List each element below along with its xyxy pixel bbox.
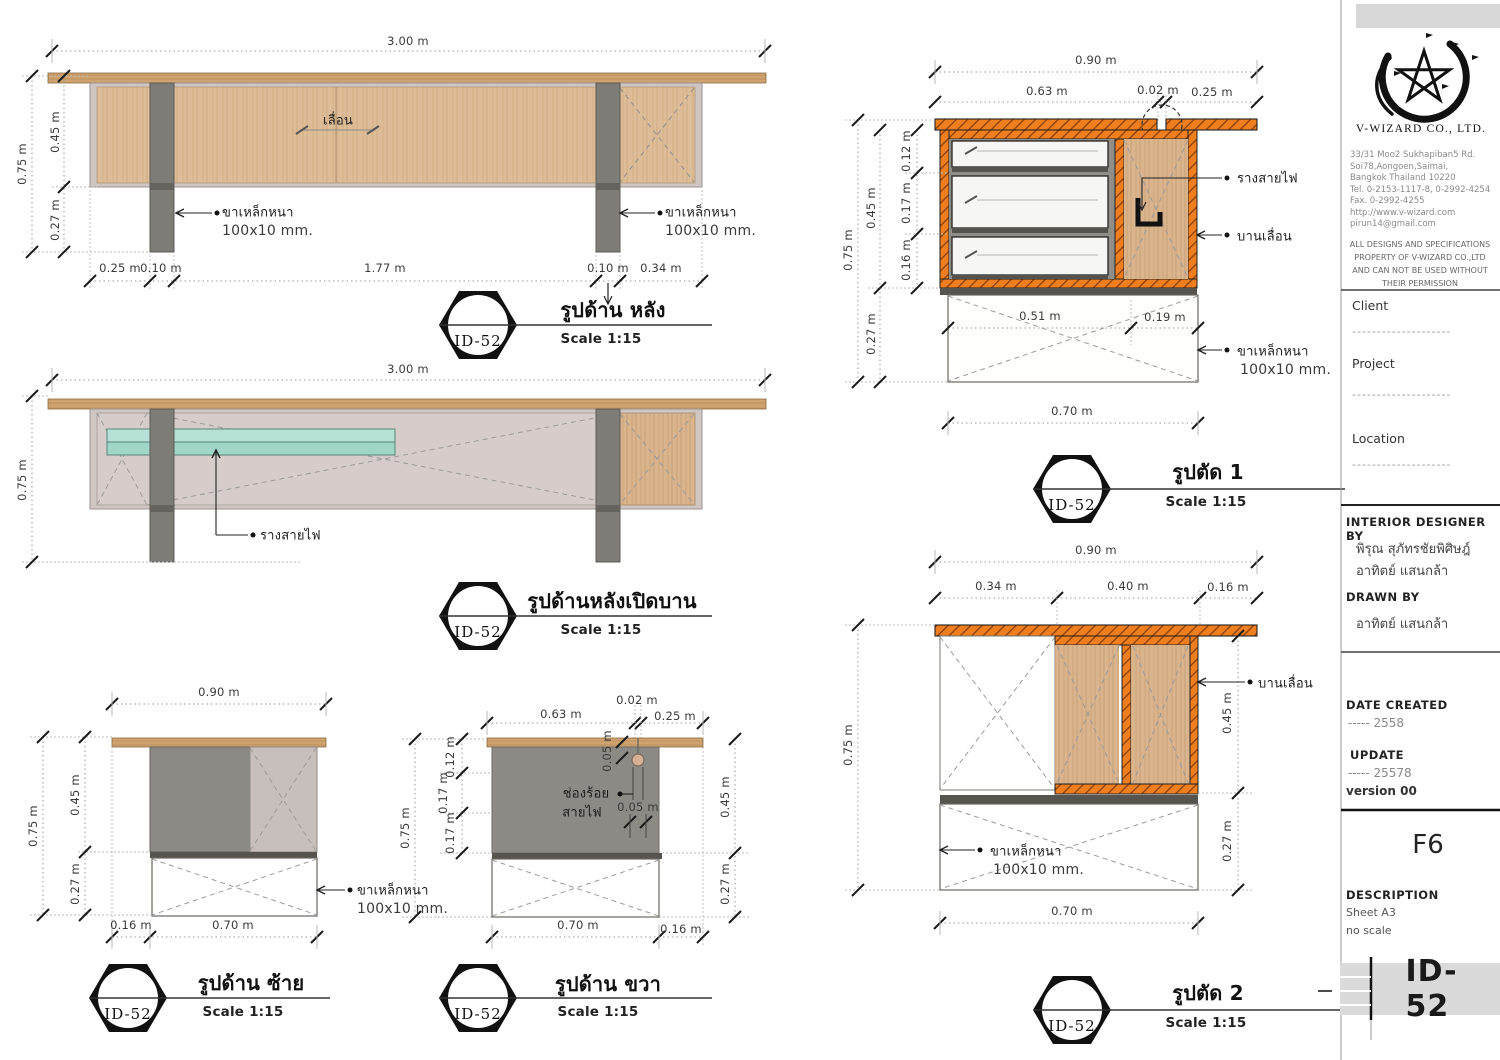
dim-label: 0.27 m (68, 863, 82, 905)
dim-label: 0.02 m (1137, 83, 1179, 97)
company-logo-icon (1377, 33, 1479, 119)
date-created-value: ----- 2558 (1348, 716, 1404, 730)
section1-drawers (952, 141, 1108, 279)
dim-label: 0.27 m (864, 313, 878, 355)
designer-name: อาทิตย์ แสนกล้า (1356, 560, 1448, 581)
sliding-door-label: บานเลื่อน (1237, 226, 1292, 247)
view-badge: ID-52 (454, 623, 501, 641)
address-line: 33/31 Moo2 Sukhapiban5 Rd. (1350, 150, 1498, 162)
rear-leg-right (596, 83, 620, 252)
dim-label: 0.27 m (718, 863, 732, 905)
left-tabletop (112, 738, 326, 747)
steel-leg-note: 100x10 mm. (665, 223, 756, 239)
steel-leg-note: ขาเหล็กหนา (1237, 341, 1309, 362)
dim-label: 0.75 m (15, 143, 29, 185)
disclaimer-line: THEIR PERMISSION (1345, 277, 1495, 290)
wire-hole-note: ช่องร้อย (563, 783, 610, 804)
view-badge: ID-52 (104, 1005, 151, 1023)
dim-label: 0.90 m (1075, 53, 1117, 67)
view-badge: ID-52 (454, 1005, 501, 1023)
view-scale: Scale 1:15 (1166, 1015, 1247, 1031)
company-address: 33/31 Moo2 Sukhapiban5 Rd. Soi78,Aongoen… (1350, 150, 1498, 231)
dim-label: 0.17 m (899, 182, 913, 224)
section1-tabletop-left (935, 119, 1157, 130)
wire-hole (632, 754, 644, 766)
sheet-code: F6 (1412, 830, 1444, 860)
view-scale: Scale 1:15 (561, 331, 642, 347)
section1-linework (845, 60, 1345, 523)
designer-name: พิรุณ สุภัทรชัยพิศิษฎ์ (1356, 538, 1470, 559)
dim-label: 0.75 m (841, 229, 855, 271)
dim-label: 0.27 m (48, 199, 62, 241)
location-value: -------------------- (1352, 458, 1451, 471)
rear-open-leg-left (150, 409, 174, 562)
section1-tabletop-right (1166, 119, 1257, 130)
cable-tray-label: รางสายไฟ (260, 525, 321, 546)
address-line: Bangkok Thailand 10220 (1350, 173, 1498, 185)
update-value: ----- 25578 (1348, 766, 1412, 780)
disclaimer-line: ALL DESIGNS AND SPECIFICATIONS (1345, 238, 1495, 251)
dim-label: 0.17 m (436, 772, 450, 814)
dim-label: 0.40 m (1107, 579, 1149, 593)
dim-label: 0.45 m (68, 774, 82, 816)
drawn-by-label: DRAWN BY (1346, 590, 1420, 604)
rear-open-leg-right (596, 409, 620, 562)
date-created-label: DATE CREATED (1346, 698, 1448, 712)
disclaimer-line: AND CAN NOT BE USED WITHOUT (1345, 264, 1495, 277)
description-label: DESCRIPTION (1346, 888, 1439, 902)
section1-base-box (948, 295, 1198, 382)
dim-label: 0.45 m (1220, 692, 1234, 734)
sheet-id: ID-52 (1406, 954, 1469, 1024)
dim-label: 0.34 m (640, 261, 682, 275)
view-scale: Scale 1:15 (561, 622, 642, 638)
description-line: Sheet A3 (1346, 906, 1396, 919)
steel-leg-note: 100x10 mm. (1240, 362, 1331, 378)
dim-label: 0.02 m (616, 693, 658, 707)
dim-label: 0.45 m (718, 776, 732, 818)
address-line: Tel. 0-2153-1117-8, 0-2992-4254 (1350, 185, 1498, 197)
dim-label: 0.16 m (1207, 580, 1249, 594)
sheet-linework (0, 0, 1500, 1060)
dim-label: 0.17 m (443, 812, 457, 854)
view-title: รูปด้าน หลัง (560, 294, 665, 326)
wire-hole-note: สายไฟ (562, 802, 602, 823)
location-label: Location (1352, 431, 1405, 446)
dim-label: 0.05 m (617, 800, 659, 814)
address-line: http://www.v-wizard.com (1350, 208, 1498, 220)
address-line: pirun14@gmail.com (1350, 219, 1498, 231)
steel-leg-note: ขาเหล็กหนา (222, 202, 294, 223)
rear-open-tabletop (48, 399, 766, 409)
dim-label: 3.00 m (387, 362, 429, 376)
version-label: version 00 (1346, 784, 1417, 798)
view-title: รูปตัด 1 (1172, 456, 1244, 488)
view-badge: ID-52 (454, 332, 501, 350)
dim-label: 0.19 m (1144, 310, 1186, 324)
view-scale: Scale 1:15 (558, 1004, 639, 1020)
dim-label: 0.16 m (899, 239, 913, 281)
view-scale: Scale 1:15 (1166, 494, 1247, 510)
dim-label: 0.63 m (1026, 84, 1068, 98)
steel-leg-note: ขาเหล็กหนา (357, 880, 429, 901)
rear-leg-left (150, 83, 174, 252)
dim-label: 0.70 m (1051, 404, 1093, 418)
dim-label: 0.34 m (975, 579, 1017, 593)
dim-label: 1.77 m (364, 261, 406, 275)
steel-leg-note: 100x10 mm. (357, 901, 448, 917)
sliding-door-label: บานเลื่อน (1258, 673, 1313, 694)
dim-label: 0.75 m (398, 807, 412, 849)
slide-label: เลื่อน (323, 110, 353, 131)
steel-leg-note: 100x10 mm. (993, 862, 1084, 878)
section2-linework (845, 550, 1345, 1044)
project-value: -------------------- (1352, 388, 1451, 401)
view-title: รูปด้านหลังเปิดบาน (527, 585, 696, 617)
dim-label: 0.70 m (1051, 904, 1093, 918)
client-label: Client (1352, 298, 1388, 313)
drawn-by-name: อาทิตย์ แสนกล้า (1356, 613, 1448, 634)
dim-label: 0.16 m (660, 922, 702, 936)
dim-label: 0.90 m (1075, 543, 1117, 557)
right-base-box (492, 859, 659, 917)
view-title: รูปด้าน ขวา (555, 968, 661, 1000)
description-line: no scale (1346, 924, 1392, 937)
disclaimer: ALL DESIGNS AND SPECIFICATIONS PROPERTY … (1345, 238, 1495, 290)
dim-label: 0.90 m (198, 685, 240, 699)
dim-label: 0.05 m (600, 730, 614, 772)
dim-label: 0.63 m (540, 707, 582, 721)
address-line: Soi78,Aongoen,Saimai, (1350, 162, 1498, 174)
dim-label: 0.75 m (15, 459, 29, 501)
dim-label: 0.45 m (864, 187, 878, 229)
right-tabletop (487, 738, 703, 747)
steel-leg-note: ขาเหล็กหนา (665, 202, 737, 223)
dim-label: 0.25 m (654, 709, 696, 723)
project-label: Project (1352, 356, 1395, 371)
dim-label: 0.10 m (140, 261, 182, 275)
cable-tray-label: รางสายไฟ (1237, 168, 1298, 189)
company-name: V-WIZARD CO., LTD. (1356, 123, 1486, 135)
left-base-box (152, 858, 317, 916)
view-title: รูปด้าน ซ้าย (198, 967, 305, 999)
steel-leg-note: ขาเหล็กหนา (990, 841, 1062, 862)
dim-label: 0.27 m (1220, 820, 1234, 862)
dim-label: 0.70 m (212, 918, 254, 932)
steel-leg-note: 100x10 mm. (222, 223, 313, 239)
dim-label: 0.25 m (1191, 85, 1233, 99)
view-badge: ID-52 (1048, 1017, 1095, 1035)
dim-label: 0.51 m (1019, 309, 1061, 323)
drawing-sheet: 3.00 m 0.75 m 0.45 m 0.27 m 0.25 m 0.10 … (0, 0, 1500, 1060)
dim-label: 3.00 m (387, 34, 429, 48)
view-badge: ID-52 (1048, 496, 1095, 514)
client-value: -------------------- (1352, 325, 1451, 338)
view-title: รูปตัด 2 (1172, 977, 1244, 1009)
disclaimer-line: PROPERTY OF V-WIZARD CO.,LTD (1345, 251, 1495, 264)
dim-label: 0.25 m (99, 261, 141, 275)
address-line: Fax. 0-2992-4255 (1350, 196, 1498, 208)
dim-label: 0.75 m (26, 805, 40, 847)
dim-label: 0.70 m (557, 918, 599, 932)
dim-label: 0.16 m (110, 918, 152, 932)
section2-door-panel-1 (1055, 645, 1119, 784)
view-scale: Scale 1:15 (203, 1004, 284, 1020)
dim-label: 0.12 m (899, 130, 913, 172)
dim-label: 0.45 m (48, 111, 62, 153)
update-label: UPDATE (1350, 748, 1404, 762)
rear-tabletop (48, 73, 766, 83)
dim-label: 0.10 m (587, 261, 629, 275)
section2-tabletop (935, 625, 1257, 636)
dim-label: 0.75 m (841, 724, 855, 766)
